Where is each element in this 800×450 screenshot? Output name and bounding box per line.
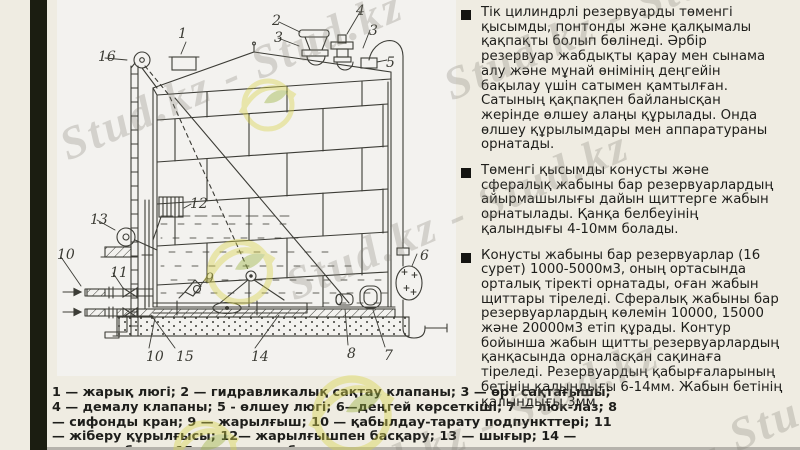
tank-shell [153, 79, 395, 307]
part-label-7: 7 [384, 349, 393, 363]
slide-text-column: Тік цилиндрлі резервуарды төменгі қысымд… [461, 6, 783, 421]
part-label-15: 15 [176, 350, 194, 364]
part-label-14: 14 [251, 350, 269, 364]
part-label-6: 6 [420, 249, 429, 263]
distribution-manifold [153, 301, 307, 315]
presentation-slide: 16123435131210119610151487 Тік цилиндрлі… [0, 0, 800, 450]
bullet-marker [461, 253, 471, 263]
part-label-5: 5 [386, 56, 395, 70]
bullet-marker [461, 168, 471, 178]
bullet-item: Тік цилиндрлі резервуарды төменгі қысымд… [461, 6, 783, 153]
part-label-1: 1 [178, 27, 187, 41]
bullet-text: Төменгі қысымды конусты және сфералық жа… [481, 164, 783, 238]
part-label-11: 11 [110, 266, 128, 280]
reservoir-figure: 16123435131210119610151487 [57, 0, 456, 376]
part-label-2: 2 [272, 14, 281, 28]
riser-pipe [142, 200, 152, 307]
bullet-item: Төменгі қысымды конусты және сфералық жа… [461, 164, 783, 238]
reservoir-drawing [57, 0, 456, 376]
part-label-3: 3 [274, 31, 283, 45]
manhole [360, 286, 381, 308]
part-label-8: 8 [347, 347, 356, 361]
part-label-3: 3 [369, 24, 378, 38]
tank-roof [153, 42, 391, 95]
part-label-4: 4 [356, 4, 365, 18]
part-label-9: 9 [205, 272, 214, 286]
light-hatch [169, 57, 199, 70]
part-label-16: 16 [98, 50, 116, 64]
figure-caption: 1 — жарық люгі; 2 — гидравликалық сақтау… [52, 386, 620, 450]
part-label-13: 13 [90, 213, 108, 227]
part-label-10: 10 [146, 350, 164, 364]
left-accent-bar [30, 0, 47, 450]
bullet-marker [461, 10, 471, 20]
bullet-text: Тік цилиндрлі резервуарды төменгі қысымд… [481, 6, 783, 153]
part-label-10: 10 [57, 248, 75, 262]
liquid-level [161, 216, 387, 303]
level-gauge-cables [145, 66, 349, 303]
part-label-12: 12 [190, 197, 208, 211]
